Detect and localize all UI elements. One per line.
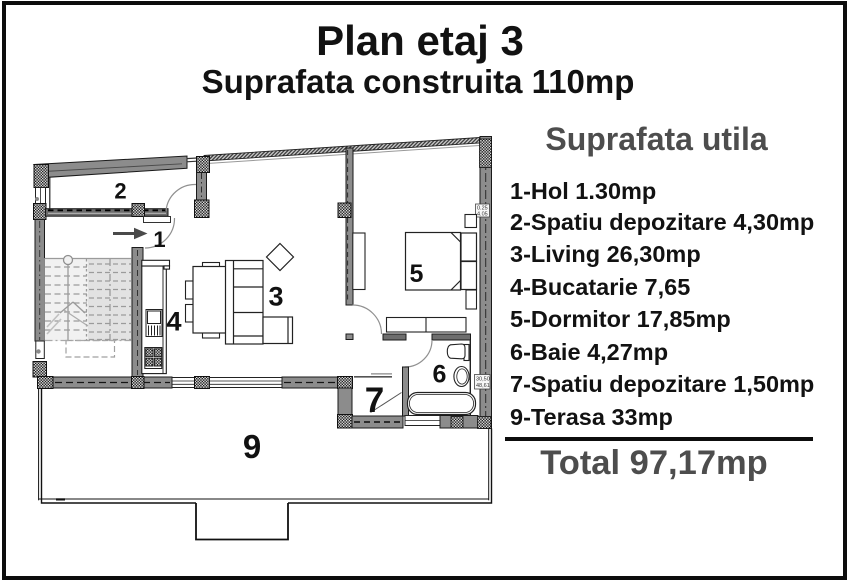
svg-text:5: 5 bbox=[410, 260, 424, 288]
svg-text:7: 7 bbox=[365, 381, 384, 420]
svg-text:6: 6 bbox=[433, 361, 447, 389]
svg-text:4: 4 bbox=[166, 307, 181, 337]
svg-text:3: 3 bbox=[268, 282, 283, 312]
svg-text:9: 9 bbox=[243, 428, 261, 465]
svg-text:2: 2 bbox=[114, 179, 126, 204]
svg-text:4.05: 4.05 bbox=[477, 212, 488, 218]
svg-text:30,50: 30,50 bbox=[476, 377, 490, 383]
svg-text:48,61: 48,61 bbox=[476, 383, 490, 389]
svg-text:1: 1 bbox=[153, 227, 165, 252]
